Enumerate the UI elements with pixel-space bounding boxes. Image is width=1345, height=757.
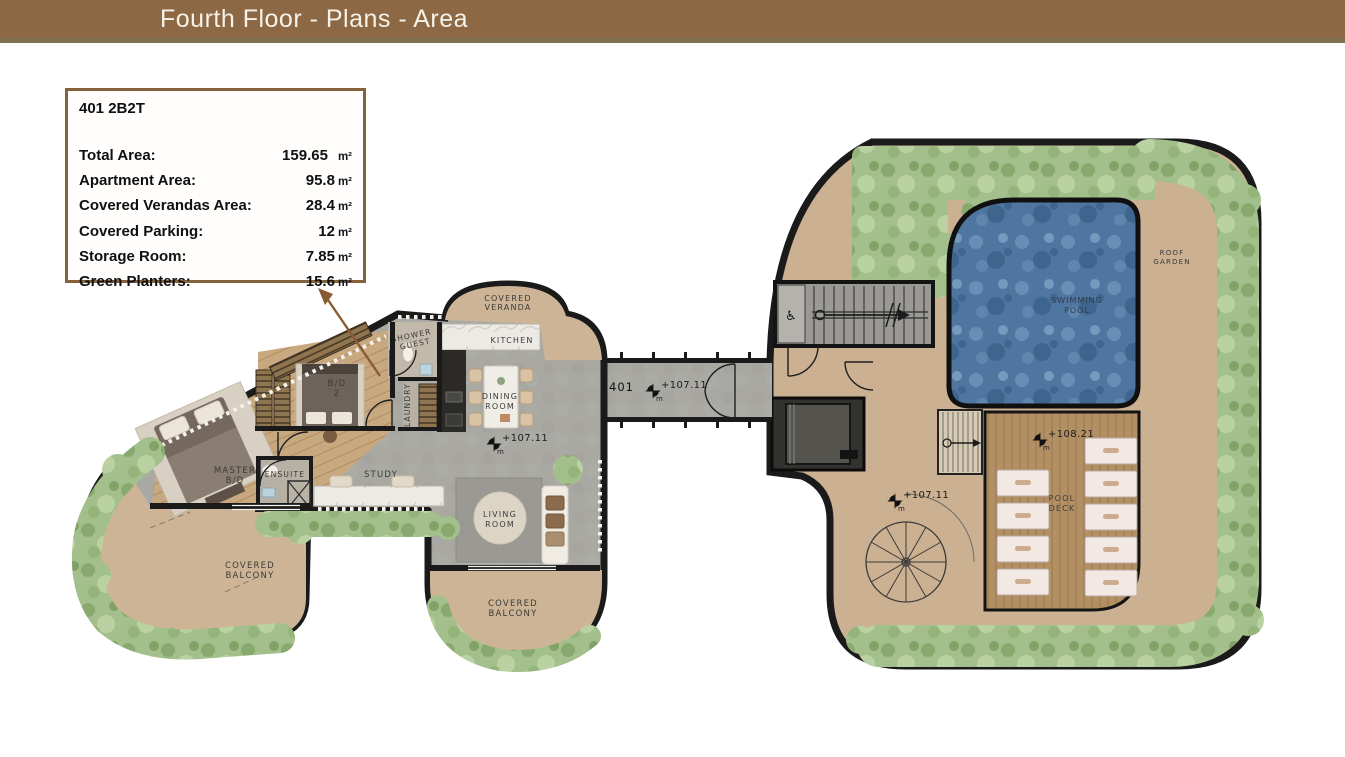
elevation-dining-unit: m: [497, 448, 504, 456]
area-unit: m²: [338, 196, 352, 219]
area-row-total: Total Area: 159.65 m²: [79, 144, 352, 169]
apartment-401: COVERED VERANDA COVERED BALCONY MASTER B…: [81, 284, 604, 661]
ensuite-label: ENSUITE: [265, 470, 306, 479]
roof-garden-label: ROOF: [1160, 249, 1185, 257]
dining-room-label: DINING: [482, 392, 518, 401]
area-value: 12: [318, 220, 335, 243]
roof-garden-label: GARDEN: [1153, 258, 1190, 266]
master-bedroom-label: MASTER: [214, 466, 256, 476]
swimming-pool: SWIMMING POOL: [949, 200, 1138, 406]
west-balcony-label: BALCONY: [226, 571, 275, 581]
area-label: Covered Verandas Area:: [79, 194, 306, 217]
elevator: [772, 398, 864, 470]
dining-room: DINING ROOM: [469, 366, 533, 428]
swimming-pool-label: POOL: [1064, 306, 1090, 315]
area-value: 7.85: [306, 245, 335, 268]
area-row-verandas: Covered Verandas Area: 28.4 m²: [79, 194, 352, 219]
laundry-label: LAUNDRY: [403, 383, 412, 427]
elevation-corridor: +107.11: [661, 380, 707, 391]
elevation-pool-deck-unit: m: [1043, 444, 1050, 452]
laundry: LAUNDRY: [403, 382, 437, 428]
area-label: Total Area:: [79, 144, 282, 167]
area-row-parking: Covered Parking: 12 m²: [79, 220, 352, 245]
unit-number: 401: [609, 380, 634, 394]
west-balcony-label: COVERED: [225, 561, 275, 571]
elevation-dining: +107.11: [502, 433, 548, 444]
area-row-apartment: Apartment Area: 95.8 m²: [79, 169, 352, 194]
elevation-walkway: +107.11: [903, 490, 949, 501]
covered-veranda-label: VERANDA: [484, 303, 531, 312]
area-value: 159.65: [282, 144, 328, 167]
study-label: STUDY: [364, 470, 398, 480]
area-unit: m²: [338, 247, 352, 270]
covered-veranda-label: COVERED: [484, 294, 531, 303]
page: { "header": { "title": "Fourth Floor - P…: [0, 0, 1345, 757]
area-rows: Total Area: 159.65 m² Apartment Area: 95…: [79, 144, 352, 295]
south-balcony-label: COVERED: [488, 599, 538, 609]
living-room-label: ROOM: [485, 520, 515, 529]
area-label: Green Planters:: [79, 270, 306, 293]
ensuite: [258, 458, 311, 509]
area-label: Storage Room:: [79, 245, 306, 268]
area-unit: m²: [338, 171, 352, 194]
area-unit: m²: [338, 272, 352, 295]
area-label: Covered Parking:: [79, 220, 318, 243]
kitchen-label: KITCHEN: [490, 336, 533, 345]
right-wing-terrace: ROOF GARDEN SWIMMING POOL: [770, 142, 1264, 666]
unit-title: 401 2B2T: [79, 100, 352, 117]
south-balcony-label: BALCONY: [489, 609, 538, 619]
area-value: 28.4: [306, 194, 335, 217]
area-unit: m²: [338, 146, 352, 169]
elevation-corridor-unit: m: [656, 395, 663, 403]
wheelchair-icon: ♿: [785, 309, 797, 324]
pool-deck-label: DECK: [1049, 504, 1076, 513]
elevation-pool-deck: +108.21: [1048, 429, 1094, 440]
unit-info-box: 401 2B2T Total Area: 159.65 m² Apartment…: [65, 88, 366, 283]
elevation-walkway-unit: m: [898, 505, 905, 513]
area-row-planters: Green Planters: 15.6 m²: [79, 270, 352, 295]
area-label: Apartment Area:: [79, 169, 306, 192]
title-bar: Fourth Floor - Plans - Area: [0, 0, 1345, 43]
master-bedroom-label: B/D: [226, 476, 245, 486]
living-room-label: LIVING: [483, 510, 517, 519]
page-title: Fourth Floor - Plans - Area: [160, 5, 468, 34]
pool-deck: POOL DECK: [985, 412, 1139, 610]
swimming-pool-label: SWIMMING: [1051, 296, 1103, 305]
dining-room-label: ROOM: [485, 402, 515, 411]
bedroom2-label: 2: [334, 389, 341, 399]
deck-stair: [938, 410, 982, 474]
area-value: 15.6: [306, 270, 335, 293]
area-unit: m²: [338, 222, 352, 245]
pool-deck-label: POOL: [1049, 494, 1076, 503]
area-value: 95.8: [306, 169, 335, 192]
area-row-storage: Storage Room: 7.85 m²: [79, 245, 352, 270]
bedroom2-label: B/D: [328, 379, 347, 389]
